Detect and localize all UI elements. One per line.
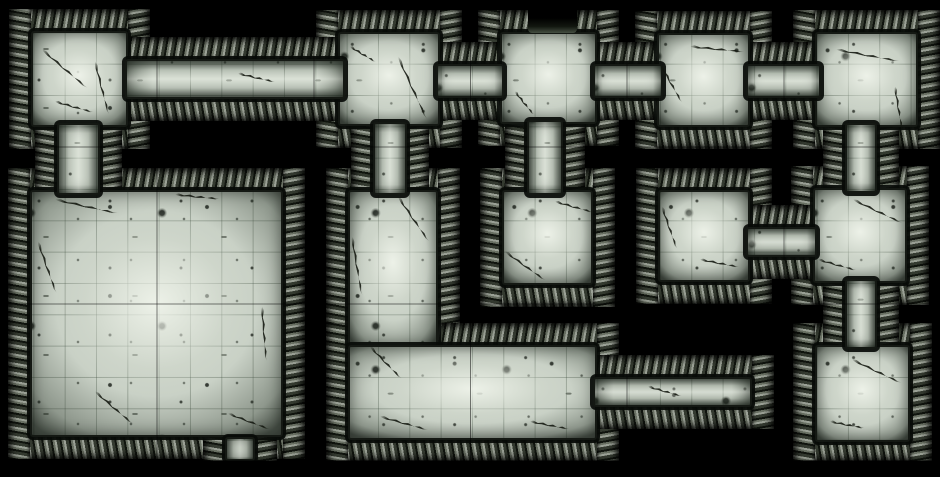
wall-top-room-top-4 <box>635 11 772 33</box>
wall-top-l-hall-vertical <box>326 168 460 190</box>
wall-bottom-corridor-west <box>103 99 367 121</box>
wall-under-corridor-deadend <box>571 355 774 429</box>
crack-mark-17 <box>397 196 431 243</box>
wall-right-corridor-deadend <box>752 355 774 429</box>
wall-right-room-top-5 <box>918 10 940 149</box>
crack-mark-28 <box>851 358 902 384</box>
wall-left-corridor-right-mid <box>823 257 845 371</box>
crack-mark-26 <box>852 198 903 224</box>
letterbox-layer <box>0 0 940 477</box>
wall-under-l-hall-horizontal <box>326 323 619 461</box>
wall-under-room-top-3 <box>478 10 619 146</box>
crack-mark-4 <box>397 56 429 121</box>
wall-top-corridor-r2-south <box>351 100 429 122</box>
floor-corridor-r1-south <box>57 123 100 195</box>
wall-top-room-mid-2 <box>636 168 772 190</box>
wall-left-great-hall <box>8 168 30 459</box>
floor-room-top-3 <box>500 32 597 124</box>
wall-under-room-right-middle <box>791 166 929 305</box>
wall-bottom-l-hall-vertical <box>326 347 460 369</box>
decals-layer <box>0 0 940 477</box>
wall-right-corridor-m2-east <box>817 205 839 279</box>
wall-left-corridor-m2-east <box>724 205 746 279</box>
floor-room-mid-1 <box>502 190 593 285</box>
north-doorway <box>528 0 577 33</box>
crack-mark-6 <box>514 91 536 116</box>
wall-under-room-top-5 <box>793 10 940 149</box>
wall-left-room-top-3 <box>478 10 500 146</box>
wall-under-great-hall <box>8 168 305 459</box>
crack-mark-15 <box>94 390 134 424</box>
crack-mark-2 <box>55 100 94 113</box>
crack-mark-27 <box>818 258 857 271</box>
crack-mark-19 <box>369 345 403 379</box>
crack-mark-3 <box>238 72 276 83</box>
wall-top-hall-south-stub <box>203 415 277 437</box>
wall-top-corridor-r1-south <box>35 101 122 123</box>
floor-corridor-r3-south <box>527 120 563 195</box>
wall-left-corridor-r3-r4 <box>571 42 593 120</box>
crack-mark-16 <box>227 412 270 430</box>
wall-right-room-top-4 <box>750 11 772 149</box>
floor-l-hall-vertical <box>348 190 438 347</box>
wall-left-l-hall-horizontal <box>326 323 348 461</box>
wall-top-corridor-deadend <box>571 355 774 377</box>
floor-corridor-west <box>125 59 345 99</box>
wall-bottom-room-right-bottom <box>793 442 932 461</box>
wall-bottom-great-hall <box>8 437 305 459</box>
wall-left-corridor-deadend <box>571 355 593 429</box>
wall-top-room-top-5 <box>793 10 940 32</box>
wall-top-room-top-2 <box>316 10 462 32</box>
floor-hall-south-stub <box>225 437 255 461</box>
wall-right-corridor-west <box>345 37 367 121</box>
crack-mark-12 <box>37 241 59 294</box>
wall-left-corridor-r2-r3 <box>414 42 436 120</box>
wall-under-l-hall-vertical <box>326 168 460 369</box>
wall-under-room-mid-1 <box>480 168 615 307</box>
wall-bottom-corridor-deadend <box>571 407 774 429</box>
wall-under-corridor-west <box>103 37 367 121</box>
wall-under-room-top-1 <box>9 9 150 149</box>
crack-mark-25 <box>700 258 740 268</box>
wall-right-room-right-middle <box>907 166 929 305</box>
floor-room-top-1 <box>31 31 128 127</box>
wall-top-corridor-r5-south <box>823 101 899 123</box>
wall-under-corridor-right-mid <box>823 257 899 371</box>
wall-under-corridor-r5-south <box>823 101 899 215</box>
wall-right-l-hall-vertical <box>438 168 460 369</box>
floor-great-hall <box>30 190 283 437</box>
wall-bottom-corridor-r1-south <box>35 195 122 217</box>
wall-right-room-top-2 <box>440 10 462 148</box>
wall-left-room-mid-2 <box>636 168 658 304</box>
crack-mark-14 <box>261 306 269 361</box>
wall-under-corridor-r3-south <box>505 98 585 217</box>
wall-bottom-room-top-3 <box>478 124 619 146</box>
wall-left-corridor-west <box>103 37 125 121</box>
crack-mark-8 <box>659 63 684 103</box>
floor-room-right-middle <box>813 188 907 283</box>
floor-room-top-4 <box>657 33 750 127</box>
wall-bottom-room-top-2 <box>316 126 462 148</box>
wall-right-l-hall-horizontal <box>597 323 619 461</box>
floors-layer <box>0 0 940 477</box>
wall-bottom-l-hall-horizontal <box>326 440 619 461</box>
wall-left-corridor-r4-r5 <box>724 42 746 120</box>
crack-mark-1 <box>94 61 111 115</box>
wall-top-corridor-r3-r4 <box>571 42 685 64</box>
wall-left-room-top-1 <box>9 9 31 149</box>
wall-right-room-top-3 <box>597 10 619 146</box>
wall-bottom-corridor-r2-south <box>351 195 429 217</box>
floor-corridor-right-mid <box>845 279 877 349</box>
wall-bottom-corridor-right-mid <box>823 349 899 371</box>
wall-left-corridor-r2-south <box>351 100 373 217</box>
wall-right-corridor-r2-south <box>407 100 429 217</box>
crack-mark-7 <box>690 45 745 53</box>
crack-mark-21 <box>530 420 570 430</box>
crack-mark-5 <box>349 45 376 63</box>
wall-bottom-corridor-r3-r4 <box>571 98 685 120</box>
wall-right-room-mid-2 <box>750 168 772 304</box>
wall-top-corridor-right-mid <box>823 257 899 279</box>
wall-top-room-right-middle <box>791 166 929 188</box>
wall-left-corridor-r5-south <box>823 101 845 215</box>
wall-left-corridor-r1-south <box>35 101 57 217</box>
crack-mark-30 <box>648 385 683 397</box>
floor-corridor-deadend <box>593 377 752 407</box>
wall-under-corridor-m2-east <box>724 205 839 279</box>
wall-left-room-top-5 <box>793 10 815 149</box>
crack-mark-10 <box>894 86 905 131</box>
wall-right-corridor-right-mid <box>877 257 899 371</box>
wall-under-corridor-r4-r5 <box>724 42 843 120</box>
crack-mark-24 <box>661 206 679 249</box>
crack-mark-13 <box>175 193 220 200</box>
wall-right-corridor-r1-south <box>100 101 122 217</box>
grid-major-overlay <box>0 0 940 461</box>
wall-top-corridor-r3-south <box>505 98 585 120</box>
wall-right-hall-south-stub <box>255 415 277 461</box>
wall-right-room-top-1 <box>128 9 150 149</box>
wall-right-great-hall <box>283 168 305 459</box>
floor-corridor-r2-r3 <box>436 64 504 98</box>
wall-right-corridor-r5-south <box>877 101 899 215</box>
wall-right-room-right-bottom <box>910 323 932 461</box>
crack-mark-29 <box>830 420 865 429</box>
wall-top-corridor-r4-r5 <box>724 42 843 64</box>
wall-bottom-corridor-r3-south <box>505 195 585 217</box>
wall-top-room-top-1 <box>9 9 150 31</box>
floor-corridor-r3-r4 <box>593 64 663 98</box>
floor-corridor-r2-south <box>373 122 407 195</box>
floor-corridor-r5-south <box>845 123 877 193</box>
walls-layer <box>0 0 940 477</box>
wall-left-room-top-4 <box>635 11 657 149</box>
wall-right-corridor-r3-south <box>563 98 585 217</box>
wall-left-hall-south-stub <box>203 415 225 461</box>
wall-bottom-room-right-middle <box>791 283 929 305</box>
wall-left-l-hall-vertical <box>326 168 348 369</box>
wall-under-hall-south-stub <box>203 415 277 461</box>
wall-bottom-room-top-4 <box>635 127 772 149</box>
wall-right-room-mid-1 <box>593 168 615 307</box>
wall-right-corridor-r2-r3 <box>504 42 526 120</box>
crack-mark-18 <box>351 236 364 296</box>
wall-left-room-top-2 <box>316 10 338 148</box>
wall-under-room-top-4 <box>635 11 772 149</box>
wall-bottom-room-top-5 <box>793 127 940 149</box>
wall-bottom-room-top-1 <box>9 127 150 149</box>
wall-bottom-corridor-r5-south <box>823 193 899 215</box>
wall-under-corridor-r3-r4 <box>571 42 685 120</box>
wall-under-room-top-2 <box>316 10 462 148</box>
map-bottom-letterbox <box>0 461 940 477</box>
floor-corridor-m2-east <box>746 227 817 257</box>
wall-left-room-right-bottom <box>793 323 815 461</box>
wall-under-corridor-r2-south <box>351 100 429 217</box>
wall-bottom-corridor-r4-r5 <box>724 98 843 120</box>
wall-left-room-mid-1 <box>480 168 502 307</box>
wall-top-room-top-3 <box>478 10 619 32</box>
wall-top-room-right-bottom <box>793 323 932 345</box>
wall-under-corridor-r1-south <box>35 101 122 217</box>
crack-mark-20 <box>380 415 429 431</box>
wall-right-corridor-r3-r4 <box>663 42 685 120</box>
floor-room-top-2 <box>338 32 440 126</box>
wall-bottom-room-mid-2 <box>636 282 772 304</box>
floor-room-mid-2 <box>658 190 750 282</box>
crack-mark-23 <box>555 200 594 213</box>
wall-top-room-mid-1 <box>480 168 615 190</box>
crack-mark-0 <box>41 48 89 89</box>
wall-top-l-hall-horizontal <box>326 323 619 345</box>
wall-left-room-right-middle <box>791 166 813 305</box>
wall-left-corridor-r3-south <box>505 98 527 217</box>
floor-room-top-5 <box>815 32 918 127</box>
wall-under-room-right-bottom <box>793 323 932 461</box>
wall-bottom-corridor-r2-r3 <box>414 98 526 120</box>
wall-bottom-room-mid-1 <box>480 285 615 307</box>
wall-top-corridor-r2-r3 <box>414 42 526 64</box>
wall-top-great-hall <box>8 168 305 190</box>
wall-bottom-corridor-m2-east <box>724 257 839 279</box>
crack-mark-9 <box>836 48 901 62</box>
wall-under-corridor-r2-r3 <box>414 42 526 120</box>
crack-mark-11 <box>55 198 119 214</box>
floor-l-hall-horizontal <box>348 345 597 440</box>
wall-right-corridor-r4-r5 <box>821 42 843 120</box>
crack-mark-22 <box>504 250 547 281</box>
floor-room-right-bottom <box>815 345 910 442</box>
floor-corridor-r4-r5 <box>746 64 821 98</box>
dungeon-map <box>0 0 940 477</box>
wall-top-corridor-west <box>103 37 367 59</box>
wall-top-corridor-m2-east <box>724 205 839 227</box>
wall-under-room-mid-2 <box>636 168 772 304</box>
